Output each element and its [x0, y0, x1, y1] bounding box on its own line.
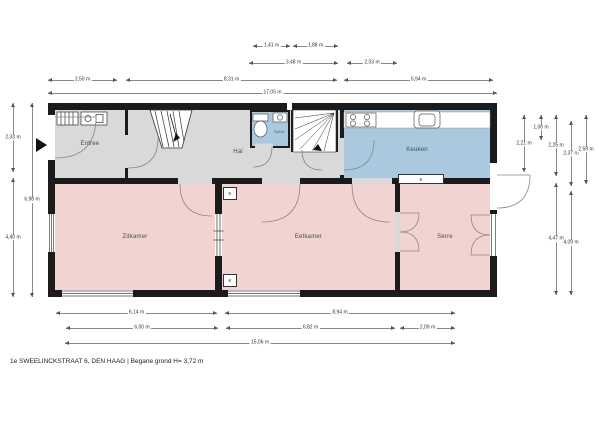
dimension-4-40-m: 4,40 m — [9, 178, 17, 297]
dim-arrow-down — [584, 180, 588, 184]
dim-arrow-down — [30, 293, 34, 297]
dim-arrow-left — [400, 326, 404, 330]
dim-label: 1,06 m — [532, 125, 550, 131]
dim-label: 8,31 m — [222, 77, 240, 83]
dim-arrow-up — [539, 115, 543, 119]
dim-arrow-up — [11, 178, 15, 182]
dimension-2-33-m: 2,33 m — [9, 103, 17, 172]
dimension-2-09-m: 2,09 m — [400, 324, 455, 332]
dim-arrow-left — [48, 78, 52, 82]
dim-label: 2,33 m — [4, 135, 22, 141]
dimension-6-00-m: 6,00 m — [66, 324, 218, 332]
dimension-2-25-m: 2,25 m — [552, 115, 560, 176]
dimension-8-94-m: 8,94 m — [225, 309, 455, 317]
dimension-2-21-m: 2,21 m — [520, 115, 528, 172]
dim-arrow-left — [344, 78, 348, 82]
dim-arrow-up — [11, 103, 15, 107]
dimension-2-50-m: 2,50 m — [48, 76, 117, 84]
dim-arrow-left — [126, 78, 130, 82]
dim-arrow-left — [225, 311, 229, 315]
dim-arrow-left — [56, 311, 60, 315]
dim-label: 2,09 m — [418, 325, 436, 331]
dim-arrow-left — [66, 326, 70, 330]
dim-label: 4,40 m — [4, 235, 22, 241]
dim-arrow-right — [451, 311, 455, 315]
dimension-17-05-m: 17,05 m — [48, 89, 497, 97]
dim-label: 6,98 m — [23, 197, 41, 203]
dimension-2-37-m: 2,37 m — [567, 121, 575, 186]
dim-arrow-right — [393, 61, 397, 65]
dim-label: 1,41 m — [262, 43, 280, 49]
dimension-6-98-m: 6,98 m — [28, 103, 36, 297]
dim-arrow-right — [334, 61, 338, 65]
dimension-1-06-m: 1,06 m — [537, 115, 545, 140]
dim-arrow-right — [451, 326, 455, 330]
dim-arrow-down — [569, 291, 573, 295]
dimension-1-88-m: 1,88 m — [293, 42, 338, 50]
dim-arrow-right — [391, 326, 395, 330]
dimension-4-47-m: 4,47 m — [552, 183, 560, 295]
dim-arrow-left — [347, 61, 351, 65]
dim-label: 2,03 m — [363, 60, 381, 66]
dim-arrow-up — [569, 191, 573, 195]
dim-arrow-right — [493, 91, 497, 95]
dim-label: 17,05 m — [262, 90, 283, 96]
dim-arrow-left — [253, 44, 257, 48]
dim-label: 15,06 m — [249, 340, 270, 346]
dim-label: 6,00 m — [133, 325, 151, 331]
dim-arrow-down — [554, 172, 558, 176]
dim-arrow-left — [65, 341, 69, 345]
caption: 1e SWEELINCKSTRAAT 6, DEN HAAG | Begane … — [10, 358, 203, 365]
dim-arrow-down — [569, 182, 573, 186]
dim-label: 2,59 m — [577, 147, 595, 153]
dimension-3-48-m: 3,48 m — [249, 59, 338, 67]
dim-label: 4,09 m — [562, 240, 580, 246]
dim-arrow-left — [48, 91, 52, 95]
dim-arrow-right — [113, 78, 117, 82]
dim-arrow-up — [522, 115, 526, 119]
dim-arrow-up — [584, 115, 588, 119]
dim-arrow-down — [554, 291, 558, 295]
dimension-15-06-m: 15,06 m — [65, 339, 455, 347]
dim-label: 5,94 m — [409, 77, 427, 83]
dim-arrow-right — [286, 44, 290, 48]
cupboard-marker: K — [223, 274, 237, 287]
dim-label: 8,94 m — [331, 310, 349, 316]
dim-arrow-right — [334, 44, 338, 48]
dimension-4-09-m: 4,09 m — [567, 191, 575, 295]
cupboard-marker: K — [398, 174, 444, 184]
dim-arrow-down — [539, 136, 543, 140]
dim-arrow-right — [214, 326, 218, 330]
dim-label: 3,48 m — [284, 60, 302, 66]
dim-arrow-down — [11, 293, 15, 297]
dim-label: 2,50 m — [73, 77, 91, 83]
dim-arrow-up — [554, 115, 558, 119]
dimension-8-31-m: 8,31 m — [126, 76, 337, 84]
dim-label: 2,21 m — [515, 141, 533, 147]
dim-arrow-down — [11, 168, 15, 172]
dim-label: 2,25 m — [547, 143, 565, 149]
dimension-2-03-m: 2,03 m — [347, 59, 397, 67]
cupboard-marker: K — [223, 187, 237, 200]
dim-arrow-right — [213, 311, 217, 315]
dim-label: 6,82 m — [301, 325, 319, 331]
floorplan-page: EntreeHalKeukenToiletZitkamerEetkamerSer… — [0, 0, 600, 424]
dim-label: 1,88 m — [306, 43, 324, 49]
dimension-6-14-m: 6,14 m — [56, 309, 217, 317]
dim-arrow-left — [249, 61, 253, 65]
dim-arrow-up — [554, 183, 558, 187]
dim-arrow-left — [226, 326, 230, 330]
dim-arrow-right — [333, 78, 337, 82]
dimension-5-94-m: 5,94 m — [344, 76, 493, 84]
dimension-1-41-m: 1,41 m — [253, 42, 290, 50]
dim-arrow-right — [451, 341, 455, 345]
dim-label: 6,14 m — [127, 310, 145, 316]
dim-arrow-up — [569, 121, 573, 125]
dimension-2-59-m: 2,59 m — [582, 115, 590, 184]
dim-arrow-down — [522, 168, 526, 172]
dim-arrow-left — [293, 44, 297, 48]
dimension-6-82-m: 6,82 m — [226, 324, 395, 332]
dim-arrow-up — [30, 103, 34, 107]
dim-arrow-right — [489, 78, 493, 82]
